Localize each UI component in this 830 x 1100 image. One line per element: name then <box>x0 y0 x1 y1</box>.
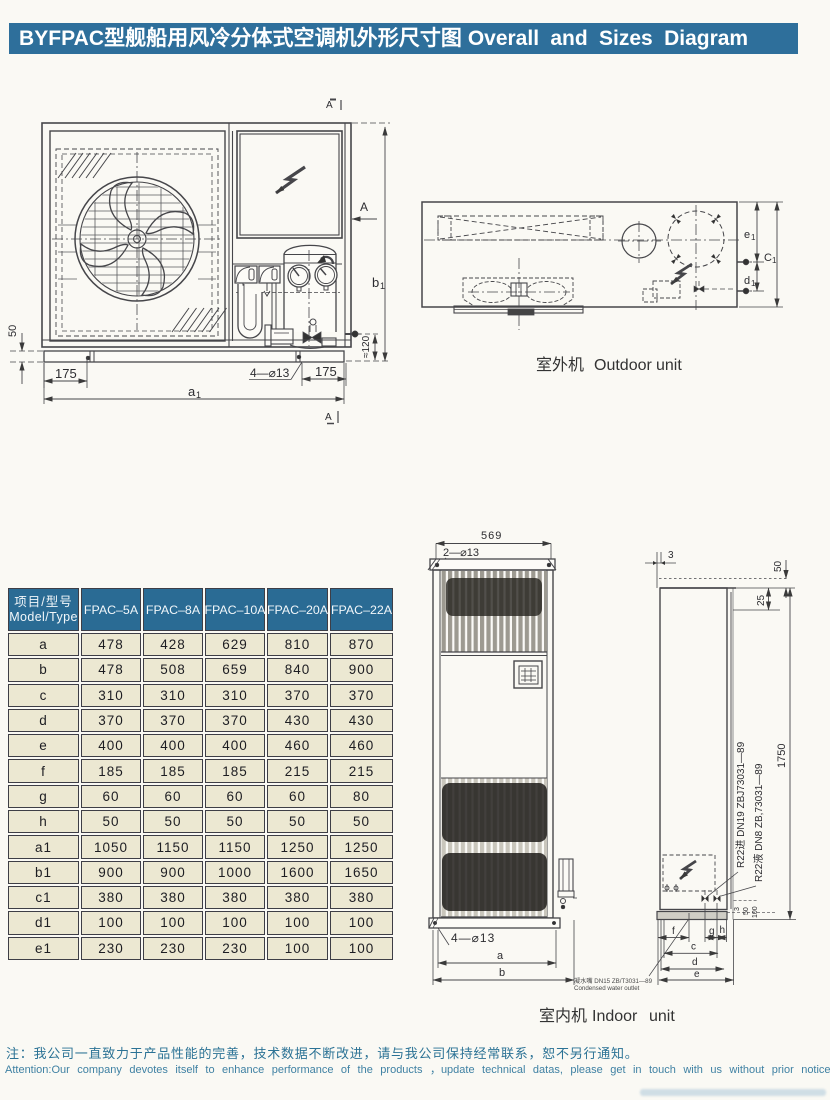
svg-text:50: 50 <box>7 325 19 337</box>
svg-text:d: d <box>692 957 698 968</box>
svg-text:g: g <box>709 926 715 937</box>
svg-text:e: e <box>744 229 750 241</box>
svg-text:a: a <box>497 950 504 962</box>
svg-text:A: A <box>325 412 332 423</box>
svg-text:C: C <box>764 252 772 264</box>
svg-text:室外机: 室外机 <box>536 356 584 374</box>
svg-text:1: 1 <box>751 279 756 288</box>
svg-text:1: 1 <box>751 233 756 242</box>
svg-text:凝水嘴 DN15 ZB/T3031—89: 凝水嘴 DN15 ZB/T3031—89 <box>574 977 653 985</box>
svg-text:A: A <box>326 100 333 111</box>
svg-text:1: 1 <box>772 256 777 265</box>
svg-text:e: e <box>694 969 700 980</box>
svg-text:1: 1 <box>196 390 201 400</box>
svg-text:d: d <box>744 275 750 287</box>
svg-text:a: a <box>188 384 196 399</box>
svg-text:175: 175 <box>55 366 77 381</box>
svg-text:3: 3 <box>668 550 674 561</box>
svg-text:b: b <box>372 275 379 290</box>
svg-text:Condensed water outlet: Condensed water outlet <box>574 985 640 992</box>
svg-text:≈120: ≈120 <box>361 335 372 358</box>
svg-text:1750: 1750 <box>776 744 788 768</box>
svg-text:f: f <box>672 926 675 937</box>
svg-text:4—⌀13: 4—⌀13 <box>451 931 495 945</box>
svg-text:Outdoor: Outdoor <box>594 357 652 374</box>
svg-text:c: c <box>691 942 696 953</box>
svg-text:h: h <box>720 925 726 936</box>
svg-text:Indoor: Indoor <box>592 1008 638 1025</box>
svg-text:室内机: 室内机 <box>539 1007 587 1025</box>
svg-text:50: 50 <box>773 560 784 572</box>
svg-text:unit: unit <box>656 357 682 374</box>
svg-text:b: b <box>499 967 505 979</box>
svg-text:569: 569 <box>481 530 502 542</box>
svg-text:25: 25 <box>756 594 767 606</box>
svg-text:1: 1 <box>380 281 385 291</box>
svg-text:4—⌀13: 4—⌀13 <box>250 366 290 380</box>
svg-text:3: 3 <box>734 907 741 911</box>
svg-text:unit: unit <box>649 1008 675 1025</box>
svg-text:R22液 DN8 ZB,73031—89: R22液 DN8 ZB,73031—89 <box>752 763 765 882</box>
svg-text:A: A <box>360 200 368 214</box>
svg-text:R22进 DN19 ZBJ73031—89: R22进 DN19 ZBJ73031—89 <box>735 741 747 868</box>
svg-text:100: 100 <box>752 906 759 918</box>
svg-text:50: 50 <box>743 907 750 915</box>
svg-text:2—⌀13: 2—⌀13 <box>443 547 479 559</box>
svg-text:175: 175 <box>315 364 337 379</box>
